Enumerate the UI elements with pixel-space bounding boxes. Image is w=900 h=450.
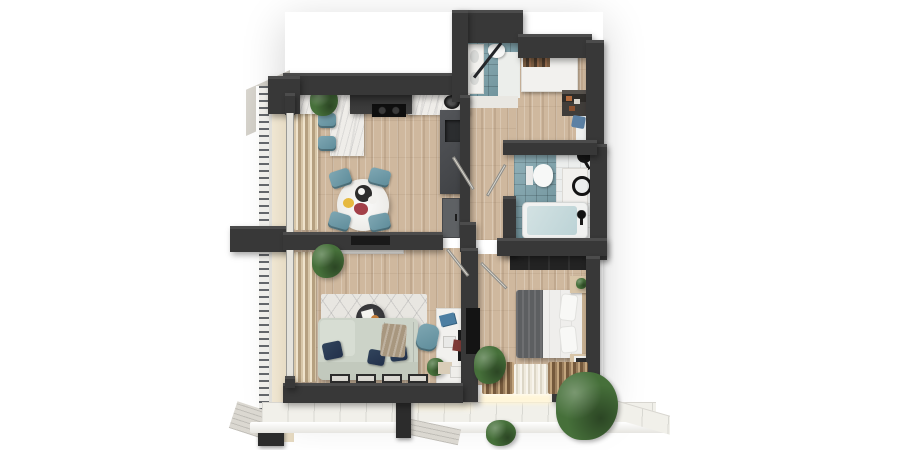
wall-topleft-corner xyxy=(268,76,300,114)
dining-cup xyxy=(358,188,365,195)
floor-mat-2 xyxy=(356,374,376,383)
terrace-pillar-left xyxy=(396,398,411,438)
wall-mid-right xyxy=(497,238,607,256)
terrace-plant-small xyxy=(486,420,516,446)
wall-entry-bath-divider xyxy=(503,140,597,155)
window-wall-left-top xyxy=(285,93,295,115)
bed-gray-throw xyxy=(516,290,543,358)
balcony-railing xyxy=(256,86,272,442)
kitchen-door xyxy=(442,198,460,238)
wall-wc-left xyxy=(452,10,468,102)
wall-kitchen-hall xyxy=(460,95,470,225)
bedroom-wall-tv xyxy=(466,308,480,354)
wall-bottom-living xyxy=(283,383,463,403)
bathroom-toilet xyxy=(533,164,553,187)
cooktop xyxy=(372,104,406,117)
entry-shoes xyxy=(566,96,572,101)
wall-entry-right xyxy=(586,40,604,152)
entry-shoe-shelf xyxy=(562,90,586,116)
kitchen-curtains xyxy=(294,98,318,230)
bathtub-faucet xyxy=(576,210,587,225)
floor-mat-3 xyxy=(382,374,402,383)
wc-sink-1 xyxy=(470,50,479,63)
entry-bag xyxy=(571,115,586,129)
wall-kitchen-top xyxy=(283,73,459,95)
floor-mat-4 xyxy=(408,374,428,383)
dining-plate-yellow xyxy=(343,198,354,208)
bedroom-closet xyxy=(510,254,588,270)
bathtub-water xyxy=(527,206,577,235)
bedroom-curtain-sheer xyxy=(514,364,548,394)
living-window-glow xyxy=(415,402,473,410)
bathroom-toilet-tank xyxy=(526,166,533,185)
wall-entry-top xyxy=(518,34,592,58)
window-left-living xyxy=(286,250,294,378)
dining-flowers xyxy=(354,203,368,215)
bathroom-round-mirror xyxy=(572,176,592,196)
kitchen-door-handle xyxy=(455,214,457,221)
tv-screen xyxy=(351,236,390,245)
floor-mat-1 xyxy=(330,374,350,383)
bed-pillow-2 xyxy=(559,325,579,354)
bar-stool-2 xyxy=(318,136,336,151)
dining-plate-white xyxy=(368,196,377,204)
window-wall-left-bottom xyxy=(285,376,295,388)
living-curtains xyxy=(294,252,316,382)
bed-pillow-1 xyxy=(558,293,578,322)
wc-shower-floor xyxy=(498,52,520,98)
bedroom-window-glow xyxy=(480,394,552,404)
wc-threshold xyxy=(468,96,518,108)
window-left-kitchen xyxy=(286,113,294,232)
floorplan-render xyxy=(0,0,900,450)
sofa-throw xyxy=(380,323,407,358)
